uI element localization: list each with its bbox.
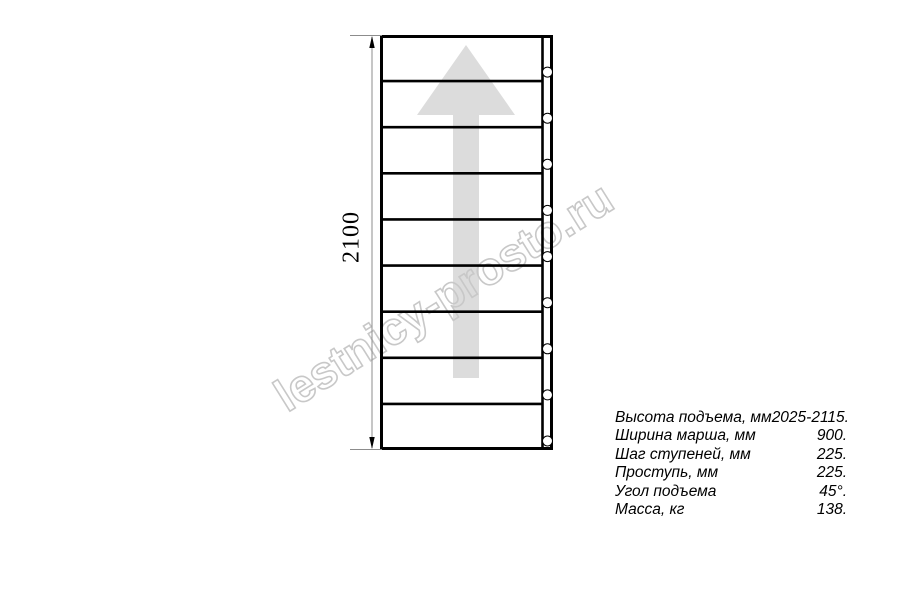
spec-value: 225.: [817, 446, 847, 464]
spec-row: Проступь, мм 225.: [615, 464, 847, 482]
spec-row: Ширина марша, мм 900.: [615, 427, 847, 445]
spec-label: Проступь, мм: [615, 464, 718, 482]
spec-label: Масса, кг: [615, 501, 684, 519]
hole-circle: [543, 67, 553, 77]
spec-row: Шаг ступеней, мм 225.: [615, 446, 847, 464]
hole-circle: [543, 298, 553, 308]
spec-row: Высота подъема, мм 2025-2115.: [615, 409, 847, 427]
spec-value: 45°.: [819, 483, 847, 501]
spec-row: Масса, кг 138.: [615, 501, 847, 519]
dimension-arrowhead-bottom: [369, 437, 374, 449]
dimension-arrowhead-top: [369, 36, 374, 48]
hole-circle: [543, 390, 553, 400]
spec-label: Ширина марша, мм: [615, 427, 756, 445]
hole-circle: [543, 113, 553, 123]
watermark-text: lestnicy-prosto.ru: [265, 171, 622, 421]
hole-circle: [543, 436, 553, 446]
spec-row: Угол подъема 45°.: [615, 483, 847, 501]
dimension-value-label: 2100: [339, 211, 366, 263]
hole-circle: [543, 344, 553, 354]
spec-label: Высота подъема, мм: [615, 409, 772, 427]
spec-value: 138.: [817, 501, 847, 519]
spec-table: Высота подъема, мм 2025-2115. Ширина мар…: [615, 409, 847, 519]
drawing-canvas: lestnicy-prosto.ru 2100 Высота подъема, …: [0, 0, 900, 600]
hole-circle: [543, 205, 553, 215]
spec-value: 225.: [817, 464, 847, 482]
spec-label: Шаг ступеней, мм: [615, 446, 751, 464]
hole-circle: [543, 252, 553, 262]
spec-label: Угол подъема: [615, 483, 716, 501]
spec-value: 2025-2115.: [772, 409, 849, 427]
hole-circle: [543, 159, 553, 169]
spec-value: 900.: [817, 427, 847, 445]
